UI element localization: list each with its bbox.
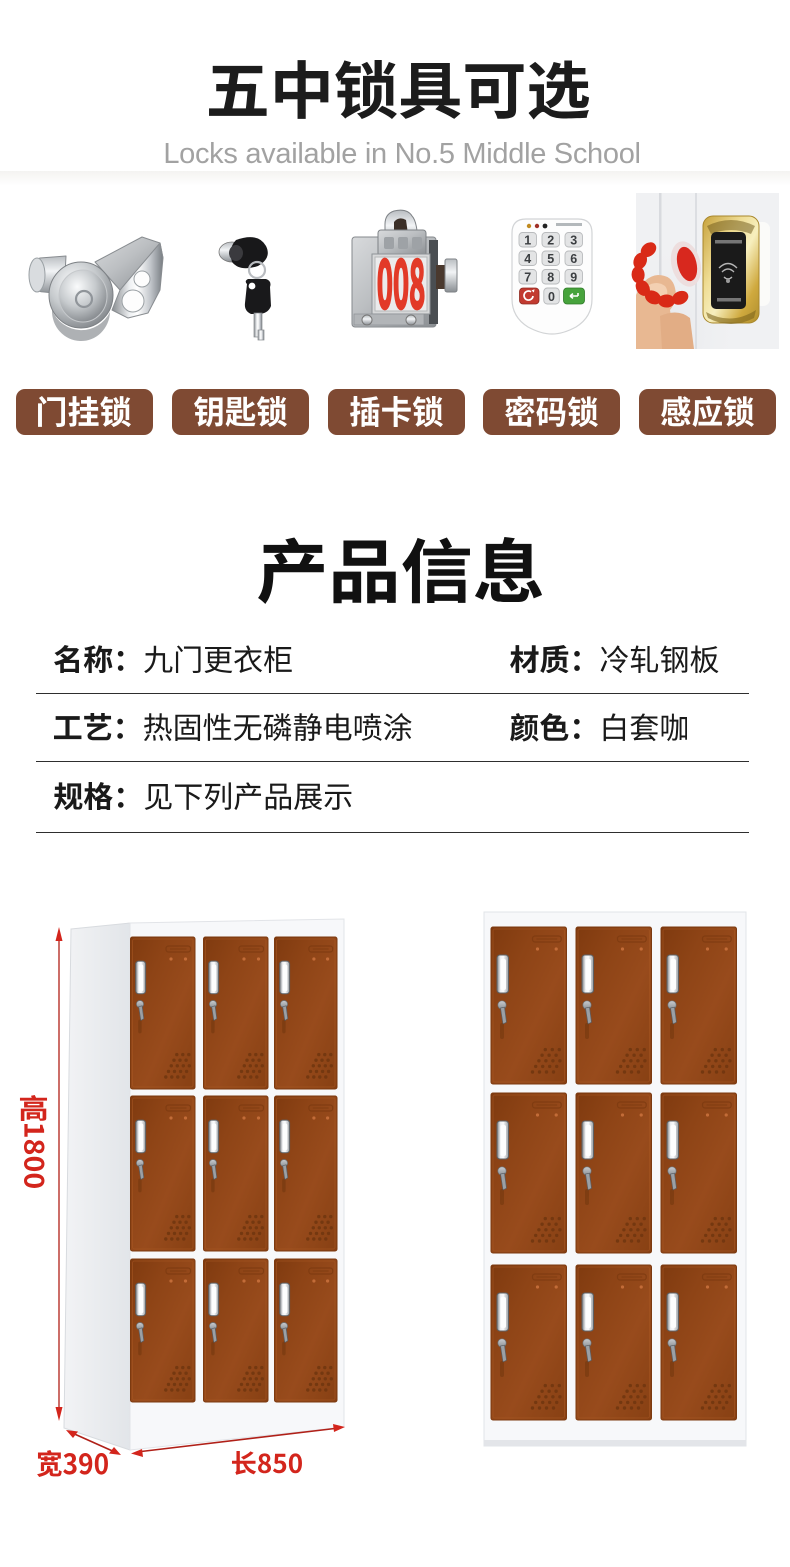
svg-text:3: 3: [570, 233, 577, 247]
svg-text:5: 5: [547, 252, 554, 266]
svg-text:4: 4: [524, 252, 531, 266]
svg-text:6: 6: [570, 252, 577, 266]
svg-text:8: 8: [547, 270, 554, 284]
svg-text:7: 7: [524, 270, 531, 284]
svg-text:0: 0: [548, 290, 555, 304]
svg-text:9: 9: [570, 270, 577, 284]
svg-text:2: 2: [547, 233, 554, 247]
svg-text:1: 1: [524, 233, 531, 247]
